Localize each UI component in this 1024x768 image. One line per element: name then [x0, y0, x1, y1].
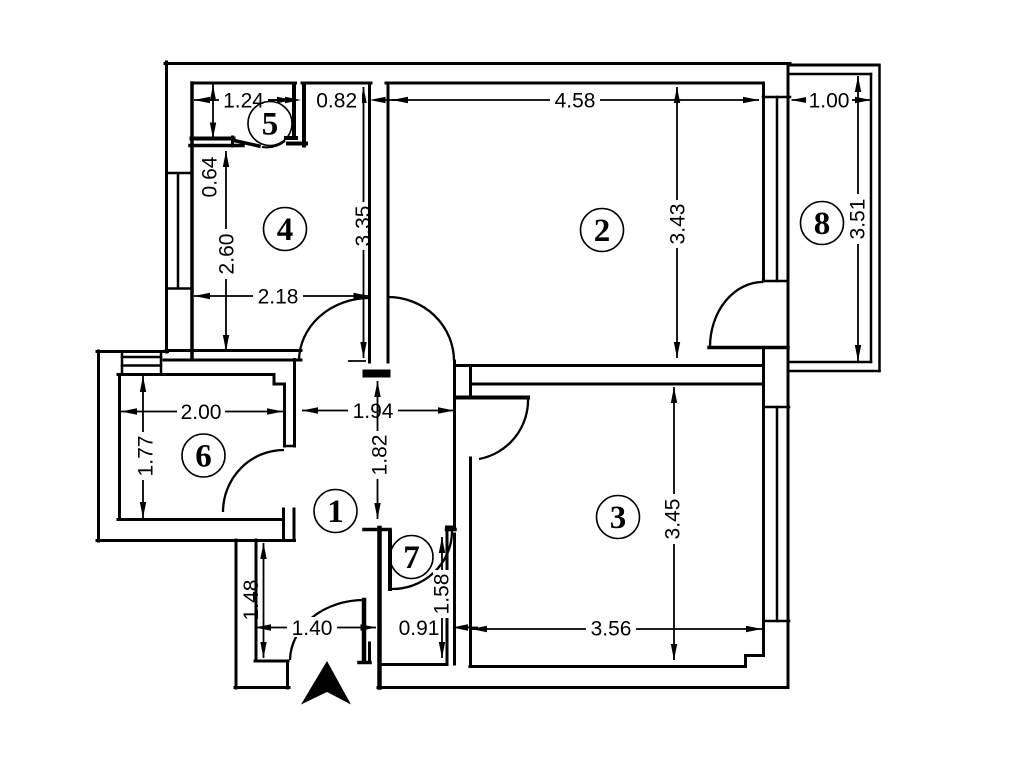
svg-text:3.35: 3.35 — [352, 206, 375, 247]
svg-text:3: 3 — [610, 500, 627, 536]
svg-text:0.64: 0.64 — [199, 156, 222, 197]
svg-text:4.58: 4.58 — [555, 90, 596, 113]
svg-text:1: 1 — [327, 494, 344, 530]
svg-text:3.43: 3.43 — [667, 204, 690, 245]
svg-text:1.82: 1.82 — [369, 435, 392, 476]
svg-text:1.48: 1.48 — [240, 580, 263, 621]
svg-text:2: 2 — [594, 213, 611, 249]
svg-text:1.24: 1.24 — [223, 90, 264, 113]
svg-text:2.00: 2.00 — [181, 401, 222, 424]
svg-text:8: 8 — [814, 206, 831, 242]
svg-text:1.58: 1.58 — [431, 574, 454, 615]
svg-text:6: 6 — [195, 439, 212, 475]
svg-text:0.91: 0.91 — [399, 617, 440, 640]
svg-text:1.40: 1.40 — [292, 617, 333, 640]
svg-text:4: 4 — [277, 212, 294, 248]
svg-text:2.18: 2.18 — [258, 286, 299, 309]
svg-text:5: 5 — [262, 107, 279, 143]
svg-text:3.56: 3.56 — [591, 618, 632, 641]
svg-text:1.00: 1.00 — [809, 90, 850, 113]
svg-text:0.82: 0.82 — [316, 90, 357, 113]
svg-text:7: 7 — [403, 540, 420, 576]
svg-text:3.45: 3.45 — [662, 499, 685, 540]
svg-text:1.94: 1.94 — [353, 400, 394, 423]
svg-text:3.51: 3.51 — [847, 199, 870, 240]
svg-text:2.60: 2.60 — [216, 234, 239, 275]
svg-text:1.77: 1.77 — [135, 436, 158, 477]
